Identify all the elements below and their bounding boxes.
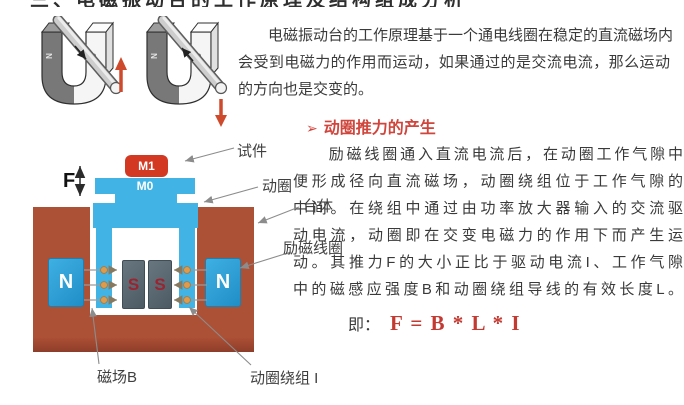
magnet-down-svg: N S (133, 16, 233, 128)
rod-end-cap (216, 83, 227, 94)
pointer-moving-coil (204, 187, 258, 202)
n-pole-left: N (48, 258, 84, 307)
thrust-line: 便形成径向直流磁场，动圈绕组位于工作气隙的 (293, 168, 683, 195)
formula-text: F = B * L * I (390, 311, 521, 336)
label-field-b: 磁场B (97, 366, 137, 387)
moving-table-block-m0: M0 (95, 178, 195, 194)
formula-row: 即： F = B * L * I (293, 311, 683, 336)
thrust-line: 中的磁感应强度B和动圈绕组导线的有效长度L。 (293, 276, 683, 303)
arrow-bullet-icon: ➢ (306, 120, 318, 136)
clipped-title-text: 三、电磁振动台的工作原理及结构组成分析 (30, 0, 570, 7)
label-specimen: 试件 (237, 140, 267, 161)
intro-line: 的方向也是交变的。 (238, 76, 670, 103)
horseshoe-magnet-up-illustration: N S (28, 16, 128, 116)
intro-line: 会受到电磁力的作用而运动，如果通过的是交流电流，那么运动 (238, 49, 670, 76)
n-pole-right: N (205, 258, 241, 307)
thrust-line: 励磁线圈通入直流电流后，在动圈工作气隙中 (293, 141, 683, 168)
label-coil-winding: 动圈绕组 I (250, 367, 318, 388)
thrust-heading-text: 动圈推力的产生 (324, 120, 436, 137)
label-table-body: 台体 (303, 195, 333, 216)
thrust-section: ➢动圈推力的产生 励磁线圈通入直流电流后，在动圈工作气隙中 便形成径向直流磁场，… (293, 118, 683, 336)
horseshoe-magnet-down-illustration: N S (133, 16, 233, 128)
thrust-line: 动电流，动圈即在交变电磁力的作用下而产生运 (293, 222, 683, 249)
clipped-title: 三、电磁振动台的工作原理及结构组成分析 (30, 0, 570, 7)
s-pole-left: S (122, 260, 145, 309)
thrust-line: 中间。在绕组中通过由功率放大器输入的交流驱 (293, 195, 683, 222)
coil-former-top (93, 203, 198, 228)
pointer-specimen (185, 148, 234, 161)
coil-former-left-leg (96, 228, 112, 308)
label-excitation-coil: 励磁线圈 (283, 237, 343, 258)
magnet-pole-n-label: N (45, 53, 54, 59)
intro-line: 电磁振动台的工作原理基于一个通电线圈在稳定的直流磁场内 (238, 22, 670, 49)
thrust-line: 动。其推力F的大小正比于驱动电流I、工作气隙 (293, 249, 683, 276)
coil-former-right-leg (179, 228, 195, 308)
magnet-up-svg: N S (28, 16, 128, 116)
thrust-heading: ➢动圈推力的产生 (306, 118, 683, 139)
table-body-base (33, 315, 254, 352)
label-moving-coil: 动圈 (262, 175, 292, 196)
force-f-label: F (63, 170, 75, 193)
coil-former-neck (115, 194, 177, 203)
intro-paragraph: 电磁振动台的工作原理基于一个通电线圈在稳定的直流磁场内 会受到电磁力的作用而运动… (238, 22, 670, 103)
formula-prefix: 即： (348, 311, 380, 335)
specimen-block-m1: M1 (125, 155, 168, 177)
s-pole-right: S (148, 260, 172, 309)
magnet-pole-n-label: N (150, 53, 159, 59)
